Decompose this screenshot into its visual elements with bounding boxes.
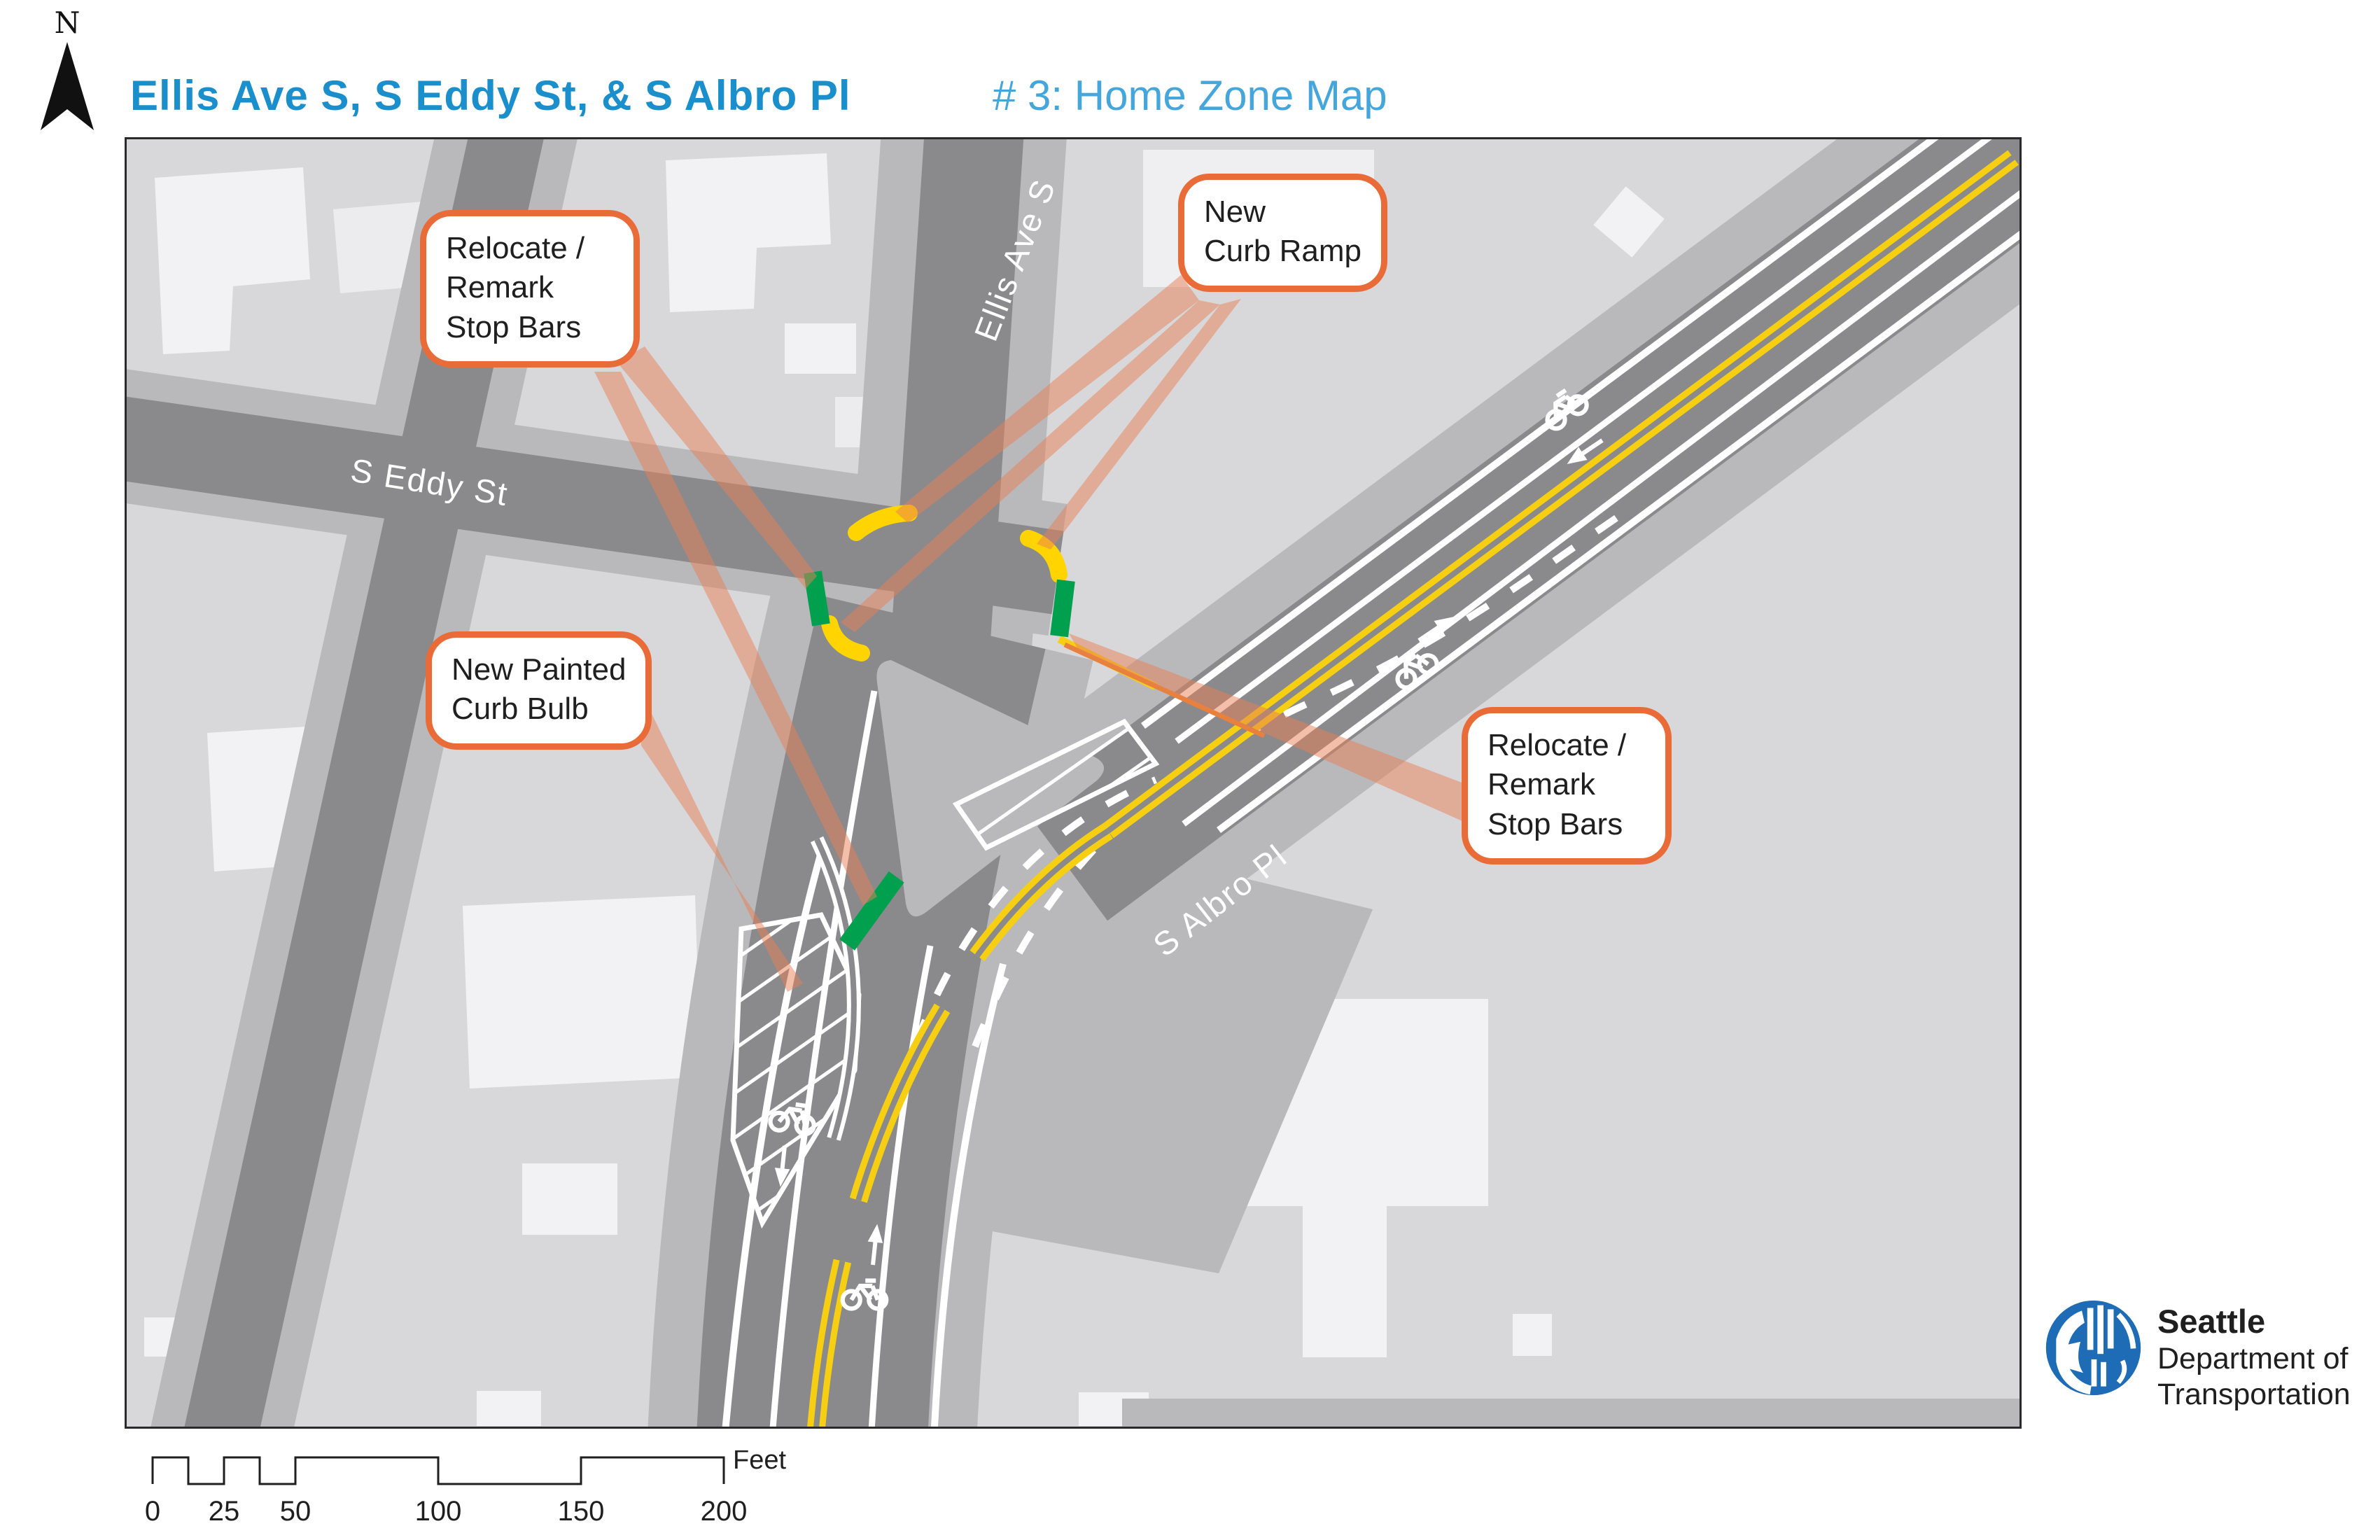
logo-department-of: Department of	[2157, 1341, 2351, 1378]
callout-line: Relocate /	[446, 229, 614, 268]
scale-tick-label: 50	[280, 1496, 311, 1527]
road-ellis-ave-n	[937, 139, 975, 692]
scale-tick-label: 0	[145, 1496, 160, 1527]
callout-line: Curb Bulb	[451, 689, 626, 729]
scale-tick-label: 200	[701, 1496, 748, 1527]
map-canvas: S Eddy St Ellis Ave S S Albro Pl	[125, 137, 2022, 1429]
callout-new-curb-ramp: New Curb Ramp	[1178, 174, 1387, 292]
scale-bar-line	[153, 1457, 724, 1484]
callout-relocate-remark-stop-bars-west: Relocate / Remark Stop Bars	[420, 210, 640, 367]
scale-tick-label: 150	[558, 1496, 605, 1527]
logo-transportation: Transportation	[2157, 1377, 2351, 1413]
map-drawing: S Eddy St Ellis Ave S S Albro Pl	[127, 139, 2019, 1427]
page: { "header": { "title": "Ellis Ave S, S E…	[0, 0, 2380, 1540]
scale-tick-label: 25	[209, 1496, 240, 1527]
scale-tick-label: 100	[415, 1496, 462, 1527]
scale-unit-label: Feet	[733, 1450, 786, 1475]
logo-seattle: Seattle	[2157, 1303, 2351, 1341]
callout-line: New	[1204, 192, 1361, 232]
callout-line: Curb Ramp	[1204, 232, 1361, 271]
north-arrow: N	[25, 6, 109, 132]
callout-relocate-remark-stop-bars-east: Relocate / Remark Stop Bars	[1462, 707, 1672, 864]
scale-bar: 0 25 50 100 150 200 Feet	[143, 1450, 815, 1540]
callout-line: Stop Bars	[1487, 805, 1646, 844]
north-arrow-icon	[32, 42, 102, 133]
sdot-logo: Seattle Department of Transportation	[2043, 1297, 2380, 1416]
callout-line: Remark	[446, 268, 614, 307]
page-title: Ellis Ave S, S Eddy St, & S Albro Pl	[130, 71, 851, 120]
callout-line: Stop Bars	[446, 308, 614, 347]
north-label: N	[55, 6, 80, 40]
callout-line: Relocate /	[1487, 726, 1646, 765]
callout-line: New Painted	[451, 650, 626, 689]
callout-line: Remark	[1487, 765, 1646, 804]
sdot-logo-icon	[2043, 1297, 2144, 1399]
bottom-sidewalk-band	[1122, 1399, 2019, 1427]
page-subtitle: # 3: Home Zone Map	[993, 71, 1387, 120]
callout-new-painted-curb-bulb: New Painted Curb Bulb	[426, 631, 652, 750]
